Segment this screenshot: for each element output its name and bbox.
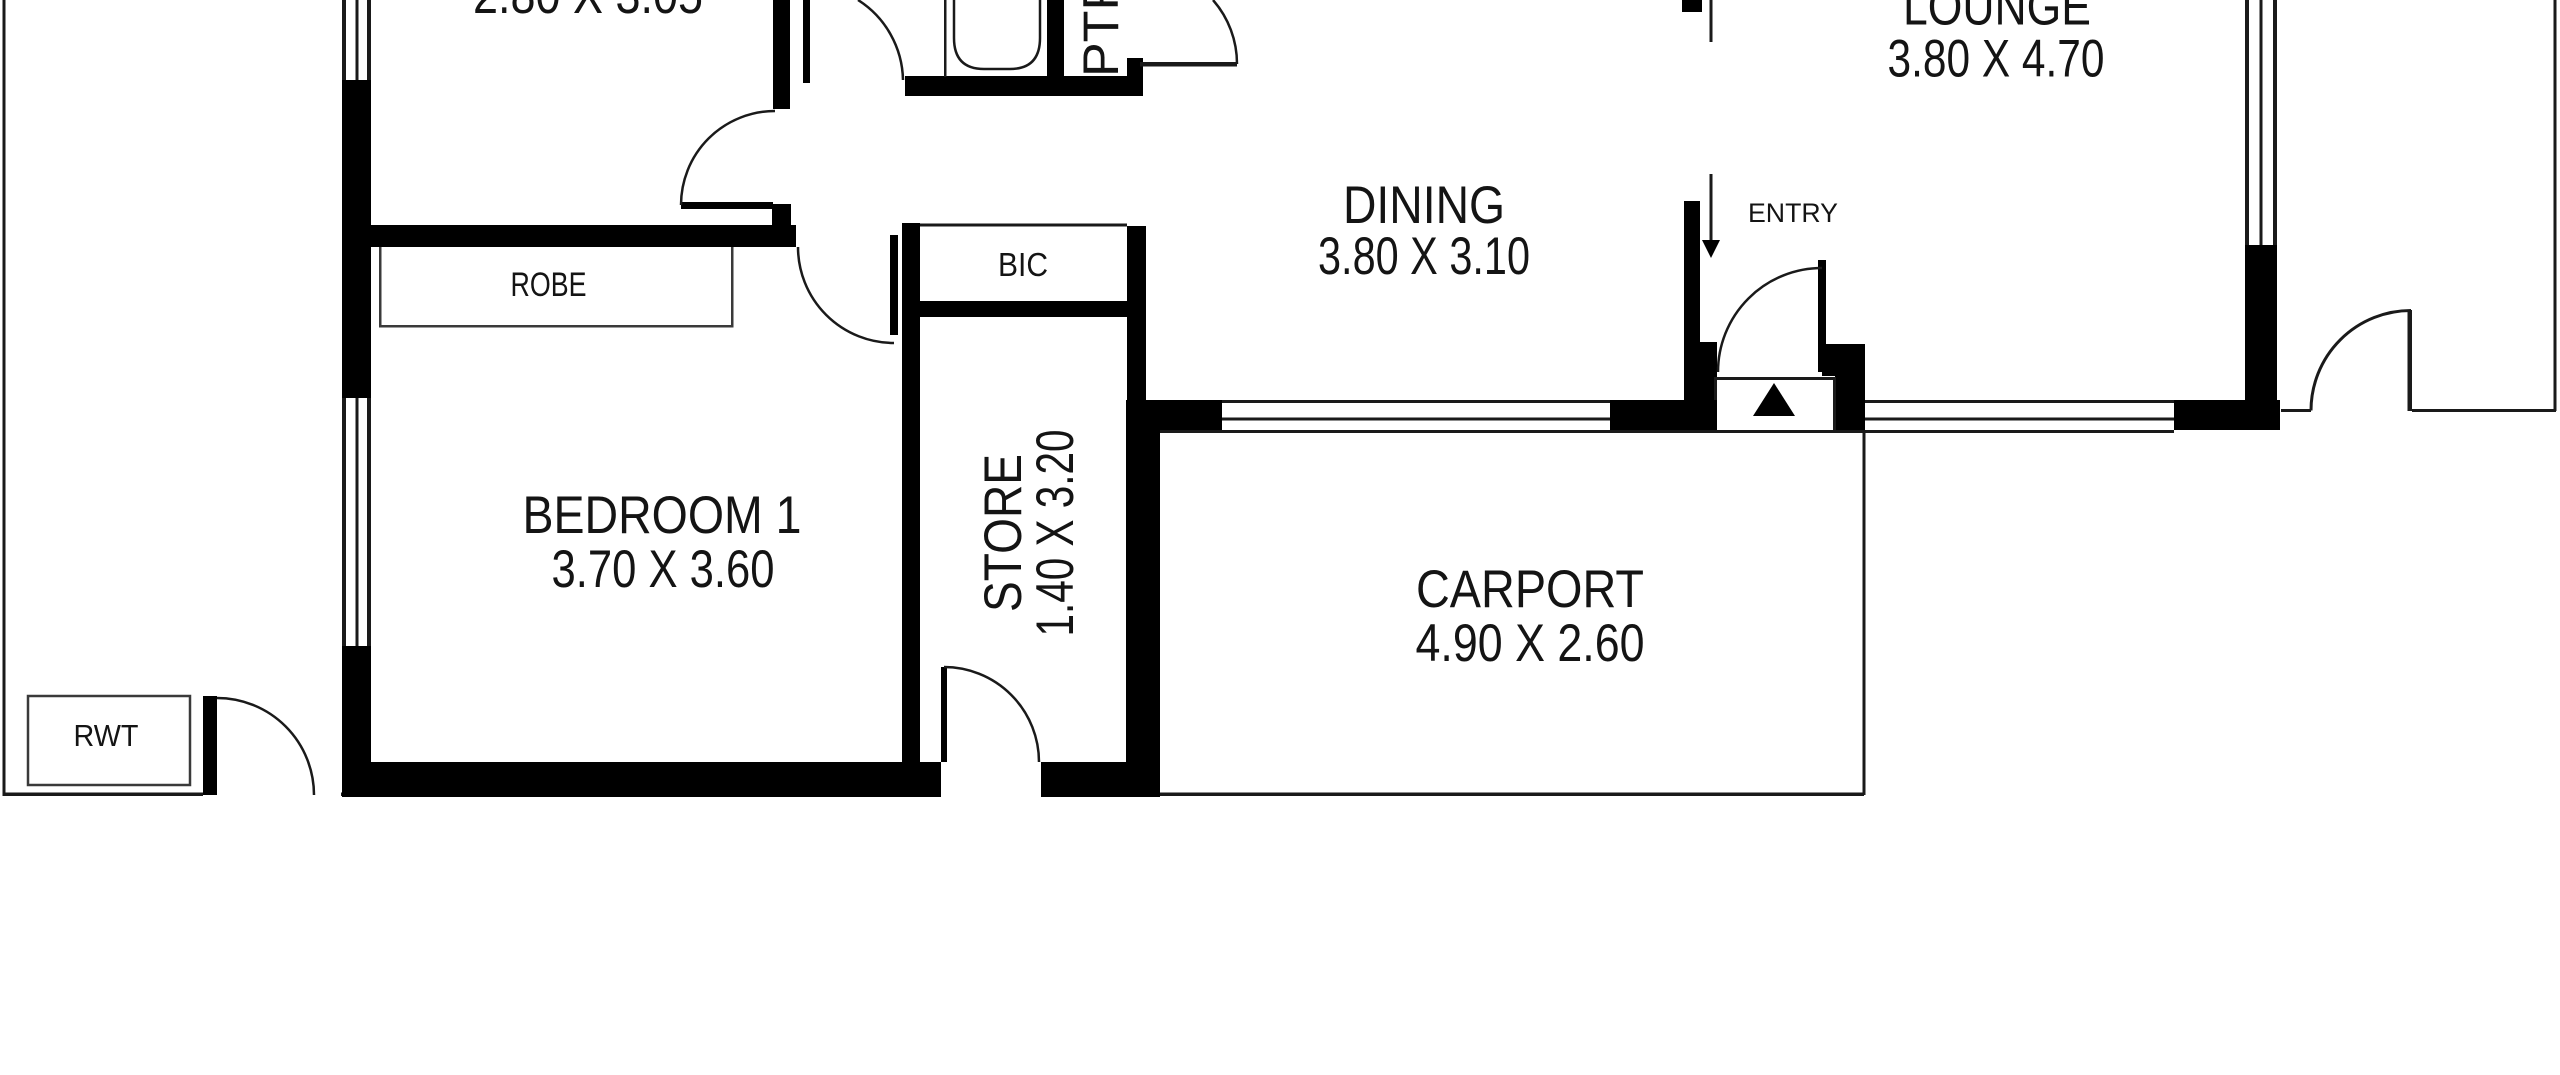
svg-text:ENTRY: ENTRY	[1748, 198, 1838, 228]
svg-text:ROBE: ROBE	[511, 266, 587, 304]
svg-text:3.80 X 3.10: 3.80 X 3.10	[1318, 227, 1530, 286]
svg-text:CARPORT: CARPORT	[1416, 560, 1644, 619]
svg-text:STORE: STORE	[974, 454, 1033, 612]
svg-text:PTR: PTR	[1073, 0, 1129, 77]
svg-text:2.80 X 3.05: 2.80 X 3.05	[473, 0, 703, 25]
svg-text:1.40 X 3.20: 1.40 X 3.20	[1026, 430, 1085, 637]
svg-text:3.70 X 3.60: 3.70 X 3.60	[552, 540, 775, 599]
svg-text:4.90 X 2.60: 4.90 X 2.60	[1416, 614, 1645, 673]
svg-text:RWT: RWT	[74, 718, 139, 753]
svg-text:BEDROOM 1: BEDROOM 1	[523, 486, 802, 545]
svg-text:BIC: BIC	[998, 246, 1048, 283]
svg-text:3.80 X 4.70: 3.80 X 4.70	[1888, 30, 2105, 89]
